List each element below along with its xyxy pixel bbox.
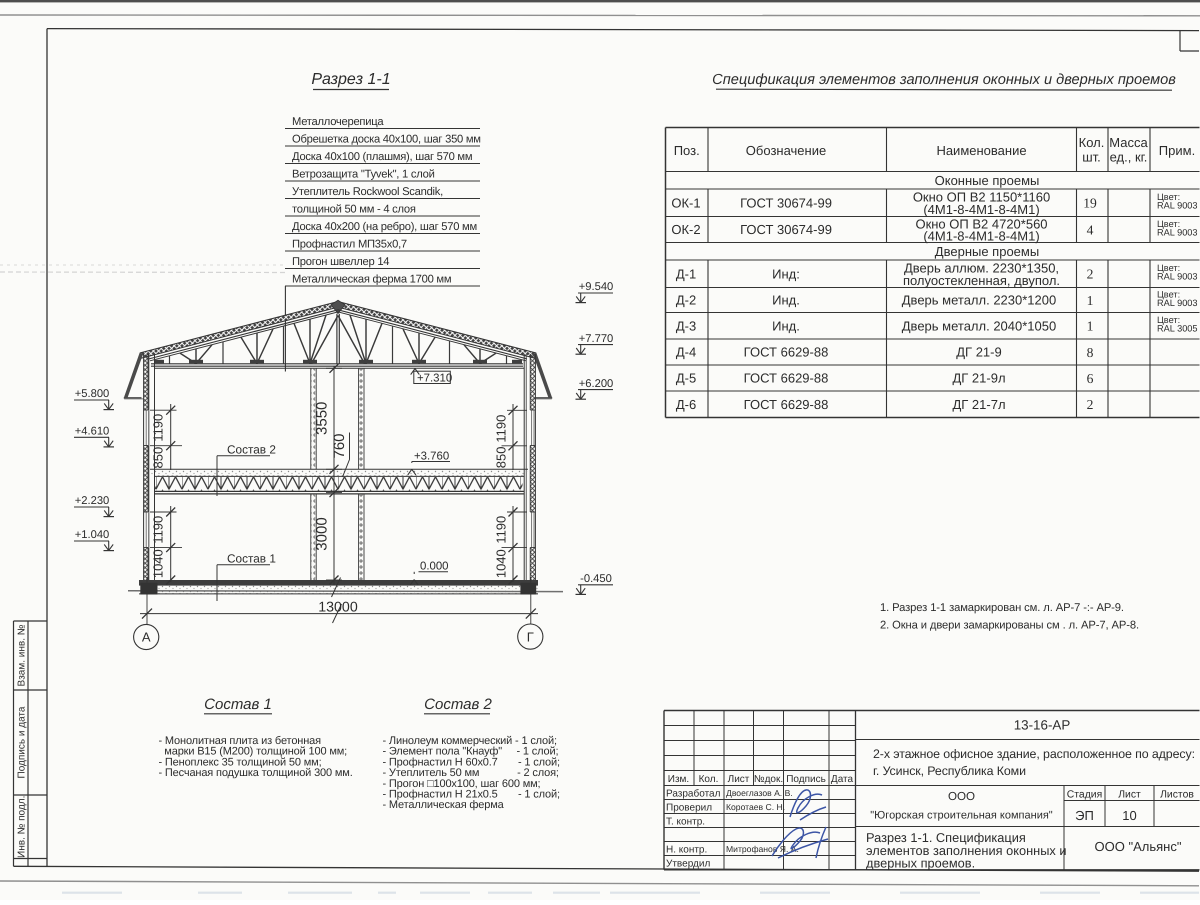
- svg-text:дверных проемов.: дверных проемов.: [866, 856, 975, 871]
- svg-text:Коротаев С. Н.: Коротаев С. Н.: [726, 802, 785, 812]
- svg-text:+4.610: +4.610: [75, 426, 110, 438]
- svg-text:19: 19: [1083, 196, 1097, 211]
- svg-text:ДГ 21-9л: ДГ 21-9л: [952, 371, 1005, 386]
- svg-text:Д-1: Д-1: [676, 266, 696, 281]
- svg-text:Металлическая ферма 1700 мм: Металлическая ферма 1700 мм: [292, 274, 451, 286]
- svg-text:1040: 1040: [493, 549, 508, 578]
- svg-text:Кол.: Кол.: [699, 774, 719, 785]
- svg-text:+3.760: +3.760: [414, 450, 449, 462]
- svg-text:ГОСТ 6629-88: ГОСТ 6629-88: [744, 371, 829, 386]
- svg-text:850: 850: [493, 447, 508, 469]
- svg-text:2. Окна и двери замаркированы: 2. Окна и двери замаркированы см . л. АР…: [880, 620, 1139, 632]
- svg-text:RAL 9003: RAL 9003: [1157, 298, 1198, 308]
- svg-text:(4М1-8-4М1-8-4М1): (4М1-8-4М1-8-4М1): [923, 202, 1039, 217]
- svg-text:Состав 2: Состав 2: [424, 696, 492, 713]
- svg-text:Листов: Листов: [1160, 790, 1194, 801]
- svg-text:1. Разрез 1-1 замаркирован см.: 1. Разрез 1-1 замаркирован см. л. АР-7 -…: [880, 602, 1124, 614]
- svg-text:Дверные проемы: Дверные проемы: [935, 244, 1039, 259]
- svg-text:толщиной 50 мм - 4 слоя: толщиной 50 мм - 4 слоя: [292, 204, 416, 216]
- svg-text:3550: 3550: [314, 402, 331, 435]
- svg-text:2: 2: [1087, 397, 1094, 412]
- svg-text:+9.540: +9.540: [579, 281, 614, 293]
- svg-text:ГОСТ 6629-88: ГОСТ 6629-88: [744, 397, 829, 412]
- svg-text:+2.230: +2.230: [75, 495, 110, 507]
- svg-text:Металлочерепица: Металлочерепица: [292, 116, 384, 128]
- svg-text:Оконные проемы: Оконные проемы: [935, 173, 1040, 188]
- svg-text:Двоеглазов А. В.: Двоеглазов А. В.: [726, 788, 793, 798]
- svg-text:8: 8: [1087, 345, 1094, 360]
- svg-text:г. Усинск, Республика Коми: г. Усинск, Республика Коми: [873, 764, 1026, 778]
- svg-text:Подпись и дата: Подпись и дата: [17, 706, 28, 778]
- svg-text:Наименование: Наименование: [936, 143, 1026, 158]
- svg-text:А: А: [142, 630, 151, 645]
- svg-text:+6.200: +6.200: [579, 378, 614, 390]
- svg-text:ДГ 21-9: ДГ 21-9: [956, 345, 1001, 360]
- svg-text:ГОСТ 30674-99: ГОСТ 30674-99: [740, 195, 832, 210]
- svg-text:1: 1: [1087, 319, 1094, 334]
- svg-text:Утвердил: Утвердил: [666, 859, 710, 870]
- svg-text:Т. контр.: Т. контр.: [666, 817, 705, 828]
- svg-text:Обрешетка доска 40х100, шаг 35: Обрешетка доска 40х100, шаг 350 мм: [292, 134, 481, 146]
- svg-text:Дверь металл. 2040*1050: Дверь металл. 2040*1050: [902, 318, 1056, 333]
- svg-text:+5.800: +5.800: [75, 388, 110, 400]
- svg-text:Разрез 1-1: Разрез 1-1: [311, 71, 390, 88]
- svg-text:Д-3: Д-3: [676, 318, 696, 333]
- svg-text:Обозначение: Обозначение: [746, 143, 826, 158]
- svg-text:4: 4: [1087, 222, 1094, 237]
- svg-text:Кол.: Кол.: [1079, 135, 1105, 150]
- svg-text:6: 6: [1087, 371, 1094, 386]
- svg-text:Спецификация элементов заполне: Спецификация элементов заполнения оконны…: [712, 72, 1176, 88]
- svg-text:шт.: шт.: [1082, 150, 1101, 165]
- svg-text:Инв. № подл.: Инв. № подл.: [17, 796, 28, 858]
- svg-text:ООО "Альянс": ООО "Альянс": [1095, 839, 1182, 854]
- svg-text:Г: Г: [527, 629, 534, 644]
- svg-text:ОК-2: ОК-2: [671, 222, 700, 237]
- svg-text:ОК-1: ОК-1: [671, 195, 700, 210]
- svg-text:Доска 40х200 (на ребро), шаг 5: Доска 40х200 (на ребро), шаг 570 мм: [292, 221, 477, 233]
- svg-text:2-х этажное офисное здание, ра: 2-х этажное офисное здание, расположенно…: [873, 747, 1195, 761]
- svg-text:Состав 2: Состав 2: [227, 442, 276, 456]
- svg-text:1190: 1190: [150, 516, 165, 544]
- svg-text:"Югорская строительная компани: "Югорская строительная компания": [870, 810, 1053, 822]
- svg-text:+7.310: +7.310: [417, 372, 452, 384]
- svg-text:- Песчаная подушка толщиной 30: - Песчаная подушка толщиной 300 мм.: [159, 767, 353, 779]
- svg-text:2: 2: [1087, 267, 1094, 282]
- svg-text:Ветрозащита "Tyvek", 1 слой: Ветрозащита "Tyvek", 1 слой: [292, 169, 435, 181]
- svg-text:Доска 40х100 (плашмя), шаг 570: Доска 40х100 (плашмя), шаг 570 мм: [292, 151, 472, 163]
- svg-text:RAL 9003: RAL 9003: [1157, 201, 1198, 211]
- svg-text:Разработал: Разработал: [666, 789, 721, 800]
- svg-text:Прогон швеллер 14: Прогон швеллер 14: [292, 256, 389, 268]
- svg-text:ед., кг.: ед., кг.: [1110, 150, 1148, 165]
- svg-text:Прим.: Прим.: [1159, 143, 1195, 158]
- svg-text:10: 10: [1122, 808, 1136, 823]
- svg-text:1190: 1190: [493, 516, 508, 544]
- svg-text:13000: 13000: [318, 600, 358, 616]
- svg-text:Подпись: Подпись: [786, 774, 826, 785]
- svg-text:Инд.: Инд.: [772, 293, 800, 308]
- svg-text:760: 760: [331, 433, 348, 458]
- svg-text:RAL 3005: RAL 3005: [1157, 324, 1198, 334]
- svg-text:850: 850: [150, 447, 165, 469]
- svg-text:Профнастил МП35х0,7: Профнастил МП35х0,7: [292, 239, 407, 251]
- svg-text:Д-6: Д-6: [676, 397, 696, 412]
- svg-text:ГОСТ 6629-88: ГОСТ 6629-88: [744, 345, 829, 360]
- svg-text:Д-4: Д-4: [676, 345, 696, 360]
- svg-text:RAL 9003: RAL 9003: [1157, 227, 1198, 237]
- svg-text:Н. контр.: Н. контр.: [666, 845, 707, 856]
- svg-text:Изм.: Изм.: [668, 774, 689, 785]
- svg-text:Масса: Масса: [1109, 135, 1148, 150]
- svg-text:ДГ 21-7л: ДГ 21-7л: [952, 397, 1005, 412]
- svg-text:1190: 1190: [150, 414, 165, 442]
- svg-text:Дверь металл. 2230*1200: Дверь металл. 2230*1200: [902, 293, 1056, 308]
- svg-text:Лист: Лист: [728, 774, 750, 785]
- svg-text:Дата: Дата: [831, 774, 854, 785]
- svg-text:1190: 1190: [493, 415, 508, 443]
- svg-text:Инд:: Инд:: [772, 266, 800, 281]
- svg-text:Поз.: Поз.: [674, 143, 700, 158]
- svg-text:+7.770: +7.770: [579, 333, 614, 345]
- svg-text:Проверил: Проверил: [666, 803, 712, 814]
- svg-text:-0.450: -0.450: [580, 573, 612, 585]
- svg-text:RAL 9003: RAL 9003: [1157, 272, 1198, 282]
- svg-text:Д-2: Д-2: [676, 293, 696, 308]
- svg-text:+1.040: +1.040: [75, 529, 110, 541]
- svg-text:1040: 1040: [150, 549, 165, 578]
- svg-text:ЭП: ЭП: [1075, 808, 1094, 823]
- svg-text:ООО: ООО: [948, 790, 975, 803]
- svg-text:Д-5: Д-5: [676, 371, 696, 386]
- svg-text:Состав 1: Состав 1: [227, 551, 276, 565]
- svg-text:Лист: Лист: [1118, 790, 1141, 801]
- svg-text:Утеплитель Rockwool Scandik,: Утеплитель Rockwool Scandik,: [292, 186, 443, 198]
- svg-text:13-16-АР: 13-16-АР: [1014, 718, 1071, 733]
- svg-text:№док.: №док.: [754, 774, 783, 785]
- svg-text:Взам. инв. №: Взам. инв. №: [17, 624, 28, 686]
- svg-text:Состав 1: Состав 1: [204, 696, 272, 713]
- svg-text:ГОСТ 30674-99: ГОСТ 30674-99: [740, 222, 832, 237]
- svg-text:3000: 3000: [314, 517, 331, 550]
- svg-text:- Металлическая ферма: - Металлическая ферма: [383, 799, 505, 811]
- svg-text:Стадия: Стадия: [1067, 790, 1102, 801]
- svg-text:Инд.: Инд.: [772, 318, 800, 333]
- svg-text:(4М1-8-4М1-8-4М1): (4М1-8-4М1-8-4М1): [923, 229, 1039, 244]
- svg-text:1: 1: [1087, 293, 1094, 308]
- svg-text:0.000: 0.000: [420, 561, 449, 573]
- svg-text:полуостекленная, двупол.: полуостекленная, двупол.: [903, 273, 1060, 288]
